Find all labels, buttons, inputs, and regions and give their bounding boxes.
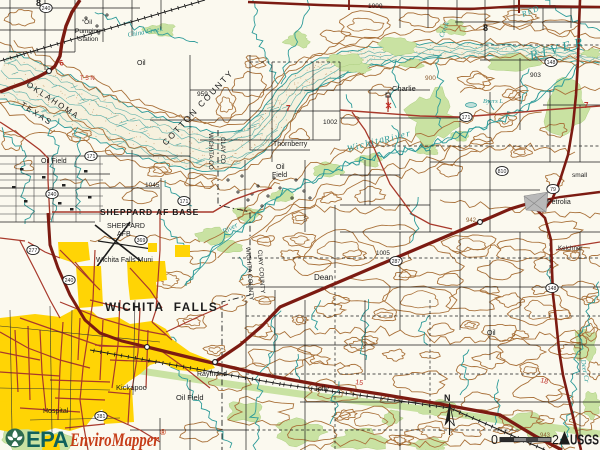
svg-text:1045: 1045 — [145, 182, 160, 189]
svg-text:1005: 1005 — [376, 250, 390, 257]
svg-text:Pumping: Pumping — [75, 28, 101, 35]
svg-text:171: 171 — [462, 115, 471, 121]
svg-text:N: N — [444, 393, 451, 403]
svg-text:7: 7 — [584, 101, 589, 110]
svg-text:AFB: AFB — [117, 231, 131, 238]
svg-text:Petrolia: Petrolia — [547, 199, 571, 206]
svg-text:942: 942 — [466, 218, 477, 224]
svg-text:369: 369 — [137, 238, 146, 244]
svg-text:1000: 1000 — [368, 3, 383, 10]
svg-text:USGS: USGS — [570, 433, 599, 449]
svg-text:277: 277 — [29, 248, 38, 254]
svg-text:Byers L: Byers L — [483, 98, 503, 105]
svg-text:Oil: Oil — [276, 164, 285, 171]
svg-text:Oil: Oil — [137, 60, 146, 67]
svg-text:0: 0 — [491, 433, 498, 447]
svg-text:903: 903 — [530, 72, 541, 79]
svg-text:8: 8 — [36, 0, 41, 8]
svg-text:Oil Field: Oil Field — [41, 158, 67, 165]
svg-text:Jolly: Jolly — [314, 384, 329, 393]
svg-text:171: 171 — [180, 199, 189, 205]
svg-text:®: ® — [160, 428, 166, 437]
svg-text:148: 148 — [548, 286, 557, 292]
svg-text:2: 2 — [552, 433, 559, 447]
svg-text:900: 900 — [425, 75, 436, 82]
svg-text:small: small — [572, 172, 588, 179]
svg-text:240: 240 — [65, 278, 74, 284]
svg-text:148: 148 — [547, 60, 556, 66]
svg-text:T 5 N: T 5 N — [80, 76, 95, 82]
svg-text:281: 281 — [97, 414, 106, 420]
svg-text:240: 240 — [48, 192, 57, 198]
svg-text:EnviroMapper: EnviroMapper — [69, 430, 159, 450]
svg-text:15: 15 — [355, 379, 364, 387]
svg-text:Oil: Oil — [487, 330, 496, 337]
svg-text:Charlie: Charlie — [392, 84, 416, 93]
svg-text:SHEPPARD AF BASE: SHEPPARD AF BASE — [100, 207, 199, 217]
svg-text:Raymond: Raymond — [197, 371, 227, 378]
svg-text:EPA: EPA — [26, 427, 69, 450]
svg-text:1002: 1002 — [323, 119, 338, 126]
svg-text:Dean: Dean — [314, 273, 333, 282]
svg-text:Field: Field — [272, 172, 287, 179]
svg-text:79: 79 — [550, 187, 556, 193]
svg-text:287: 287 — [392, 259, 401, 265]
svg-text:240: 240 — [42, 6, 51, 12]
svg-text:SHEPPARD: SHEPPARD — [107, 223, 145, 230]
svg-text:810: 810 — [498, 169, 507, 175]
svg-text:Oil Field: Oil Field — [176, 393, 204, 402]
svg-text:Wichita Falls Muni: Wichita Falls Muni — [96, 257, 153, 264]
svg-text:Kelchner: Kelchner — [558, 245, 582, 252]
svg-text:“Oil: “Oil — [82, 19, 93, 26]
svg-text:Hospital: Hospital — [43, 408, 69, 415]
svg-text:Thornberry: Thornberry — [273, 141, 308, 148]
svg-text:WICHITA FALLS: WICHITA FALLS — [105, 300, 218, 314]
svg-text:Kickapoo: Kickapoo — [116, 383, 147, 392]
svg-text:171: 171 — [87, 154, 96, 160]
svg-text:8: 8 — [483, 23, 488, 33]
svg-text:CLAY CO: CLAY CO — [219, 137, 226, 164]
svg-text:7: 7 — [286, 104, 291, 113]
svg-text:Station: Station — [78, 36, 99, 43]
svg-text:WICHITA CO: WICHITA CO — [207, 133, 214, 170]
